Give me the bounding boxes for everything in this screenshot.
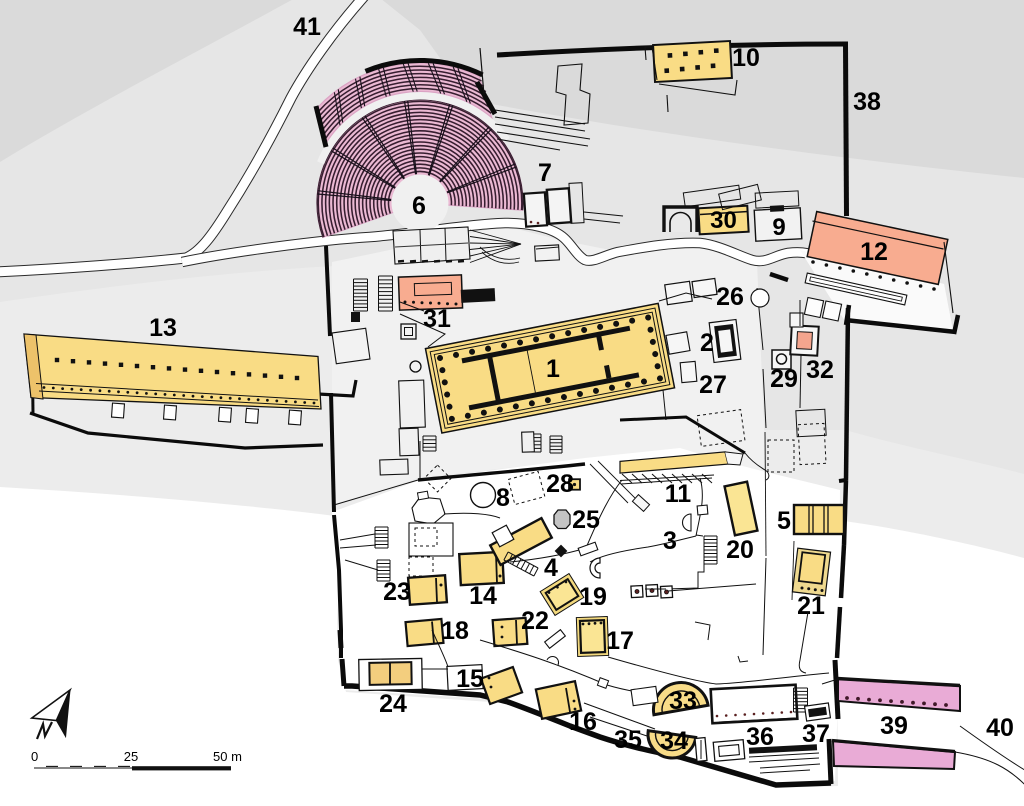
svg-text:6: 6 — [412, 192, 426, 220]
svg-text:25: 25 — [572, 506, 600, 534]
svg-text:40: 40 — [986, 714, 1014, 742]
svg-text:33: 33 — [669, 687, 697, 715]
svg-text:9: 9 — [772, 214, 785, 241]
svg-text:32: 32 — [806, 356, 834, 384]
svg-text:23: 23 — [383, 578, 411, 606]
svg-text:21: 21 — [797, 592, 825, 620]
svg-text:14: 14 — [469, 582, 497, 610]
svg-text:31: 31 — [423, 305, 451, 333]
svg-text:27: 27 — [699, 371, 727, 399]
svg-text:26: 26 — [716, 283, 744, 311]
svg-text:2: 2 — [700, 329, 714, 357]
svg-text:20: 20 — [726, 536, 754, 564]
svg-text:12: 12 — [860, 238, 888, 266]
svg-text:28: 28 — [546, 470, 574, 498]
svg-text:10: 10 — [732, 44, 760, 72]
svg-text:37: 37 — [802, 720, 830, 748]
svg-text:16: 16 — [569, 708, 597, 736]
svg-text:0: 0 — [31, 749, 38, 764]
svg-text:15: 15 — [456, 665, 484, 693]
svg-text:22: 22 — [521, 607, 549, 635]
svg-text:25: 25 — [124, 749, 138, 764]
svg-text:7: 7 — [538, 159, 552, 187]
svg-text:35: 35 — [614, 726, 642, 754]
svg-text:18: 18 — [441, 617, 469, 645]
svg-text:5: 5 — [777, 507, 791, 535]
svg-text:34: 34 — [660, 727, 688, 755]
svg-text:39: 39 — [880, 712, 908, 740]
svg-text:17: 17 — [606, 627, 634, 655]
svg-text:8: 8 — [496, 484, 510, 512]
svg-text:4: 4 — [544, 554, 558, 582]
svg-text:50 m: 50 m — [213, 749, 242, 764]
svg-text:1: 1 — [546, 355, 560, 383]
svg-text:41: 41 — [293, 13, 321, 41]
svg-text:24: 24 — [379, 690, 407, 718]
svg-text:11: 11 — [665, 480, 692, 508]
svg-text:3: 3 — [663, 527, 677, 555]
svg-text:19: 19 — [579, 583, 607, 611]
svg-text:13: 13 — [149, 314, 177, 342]
svg-text:38: 38 — [853, 88, 881, 116]
svg-text:30: 30 — [710, 207, 737, 234]
svg-text:29: 29 — [770, 365, 798, 393]
